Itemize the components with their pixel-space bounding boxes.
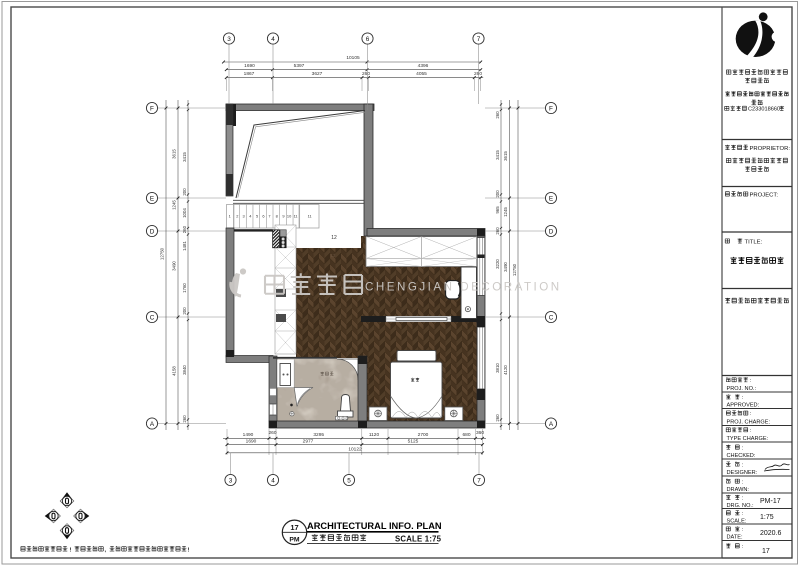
svg-text:200: 200	[182, 307, 187, 315]
svg-text:1690: 1690	[246, 438, 257, 444]
svg-text:2: 2	[236, 213, 238, 218]
svg-text:E: E	[549, 195, 553, 202]
svg-text:260: 260	[495, 414, 500, 422]
svg-text:DATE:: DATE:	[727, 535, 744, 541]
svg-text:PROJ. CHARGE:: PROJ. CHARGE:	[727, 419, 771, 425]
svg-text:1867: 1867	[244, 71, 255, 77]
svg-text:5: 5	[347, 477, 351, 484]
svg-text:PM: PM	[289, 537, 300, 544]
svg-text:E: E	[150, 195, 154, 202]
svg-text:260: 260	[362, 71, 370, 77]
svg-text:3: 3	[243, 213, 245, 218]
svg-text:APPROVED:: APPROVED:	[727, 403, 760, 409]
svg-text:ARCHITECTURAL INFO. PLAN: ARCHITECTURAL INFO. PLAN	[307, 521, 442, 531]
svg-text:2700: 2700	[418, 432, 429, 438]
svg-text:200: 200	[182, 188, 187, 196]
svg-text:360: 360	[476, 430, 484, 436]
svg-text:2020.6: 2020.6	[760, 530, 782, 537]
svg-text:4: 4	[271, 36, 275, 43]
svg-text:C233018660: C233018660	[748, 106, 780, 112]
svg-text:SCALE 1:75: SCALE 1:75	[395, 534, 442, 543]
svg-text:4055: 4055	[416, 71, 427, 77]
svg-text:!: !	[188, 548, 190, 554]
svg-text:7: 7	[477, 477, 481, 484]
svg-text:F: F	[549, 105, 553, 112]
svg-text:A: A	[150, 421, 155, 428]
svg-text:6: 6	[366, 36, 370, 43]
svg-text:1: 1	[229, 213, 231, 218]
svg-text:3: 3	[229, 477, 233, 484]
svg-text:1690: 1690	[244, 63, 255, 69]
svg-text:12: 12	[331, 235, 337, 241]
svg-text:C: C	[150, 314, 155, 321]
svg-text:DESIGNER:: DESIGNER:	[727, 470, 758, 476]
svg-text:CHENGJIAN DECORATION: CHENGJIAN DECORATION	[365, 281, 562, 294]
svg-text:1245: 1245	[503, 207, 508, 217]
svg-text:C: C	[549, 314, 554, 321]
svg-text:PROJ. NO.:: PROJ. NO.:	[727, 386, 757, 392]
svg-text:A: A	[549, 421, 554, 428]
svg-text:3295: 3295	[313, 432, 324, 438]
svg-text:TYPE CHARGE:: TYPE CHARGE:	[727, 436, 769, 442]
svg-text:7: 7	[477, 36, 481, 43]
svg-text:5397: 5397	[294, 63, 305, 69]
svg-text:3627: 3627	[312, 71, 323, 77]
svg-text:3: 3	[227, 36, 231, 43]
svg-text:3810: 3810	[495, 363, 500, 373]
svg-text:3840: 3840	[182, 365, 187, 375]
svg-text:D: D	[150, 228, 155, 235]
svg-text:PM-17: PM-17	[760, 498, 781, 505]
svg-text:PROPRIETOR:: PROPRIETOR:	[750, 146, 791, 152]
svg-text:3220: 3220	[495, 259, 500, 269]
svg-text:1120: 1120	[369, 432, 380, 438]
svg-text:680: 680	[462, 432, 470, 438]
svg-text:9: 9	[282, 213, 284, 218]
svg-text:12750: 12750	[512, 263, 517, 276]
svg-text:SCALE:: SCALE:	[727, 519, 747, 525]
svg-text:12750: 12750	[160, 247, 165, 260]
svg-text:2977: 2977	[303, 438, 314, 444]
svg-text:!: !	[70, 548, 72, 554]
svg-text:TITLE:: TITLE:	[745, 240, 763, 246]
svg-text:4158: 4158	[172, 366, 177, 376]
svg-text:3615: 3615	[172, 149, 177, 159]
svg-text:3490: 3490	[172, 261, 177, 271]
svg-text:200: 200	[495, 190, 500, 198]
svg-text:8: 8	[276, 213, 278, 218]
svg-text:1245: 1245	[172, 200, 177, 210]
svg-text:965: 965	[495, 206, 500, 214]
svg-text:5125: 5125	[408, 438, 419, 444]
svg-text:10105: 10105	[346, 55, 360, 61]
svg-text:17: 17	[762, 548, 770, 555]
svg-text:DRAWN:: DRAWN:	[727, 487, 750, 493]
svg-text:10122: 10122	[348, 446, 362, 452]
svg-text:13: 13	[330, 253, 336, 258]
svg-text:11: 11	[308, 213, 312, 218]
svg-text:3490: 3490	[503, 262, 508, 272]
svg-text:260: 260	[495, 227, 500, 235]
svg-text:3415: 3415	[182, 152, 187, 162]
svg-text:1760: 1760	[182, 283, 187, 293]
svg-text:PROJECT:: PROJECT:	[750, 193, 779, 199]
svg-text:4120: 4120	[503, 365, 508, 375]
svg-text:17: 17	[290, 523, 298, 532]
svg-text:4396: 4396	[418, 63, 429, 69]
svg-text:5: 5	[256, 213, 258, 218]
svg-text:DRG. NO.:: DRG. NO.:	[727, 503, 754, 509]
svg-text:D: D	[549, 228, 554, 235]
svg-text:1481: 1481	[182, 241, 187, 251]
svg-text:7: 7	[268, 213, 270, 218]
svg-text:1004: 1004	[182, 208, 187, 218]
svg-text:260: 260	[495, 111, 500, 119]
svg-text:3415: 3415	[495, 150, 500, 160]
svg-text:260: 260	[474, 71, 482, 77]
svg-text:CHECKED:: CHECKED:	[727, 453, 756, 459]
svg-text:4: 4	[271, 477, 275, 484]
svg-text:F: F	[150, 105, 154, 112]
svg-text:260: 260	[182, 225, 187, 233]
svg-text:260: 260	[268, 430, 276, 436]
svg-text:3615: 3615	[503, 151, 508, 161]
svg-text:1:75: 1:75	[760, 514, 774, 521]
svg-text:260: 260	[182, 415, 187, 423]
svg-text:1490: 1490	[243, 432, 254, 438]
svg-text:6: 6	[262, 213, 264, 218]
svg-text:11: 11	[294, 213, 298, 218]
